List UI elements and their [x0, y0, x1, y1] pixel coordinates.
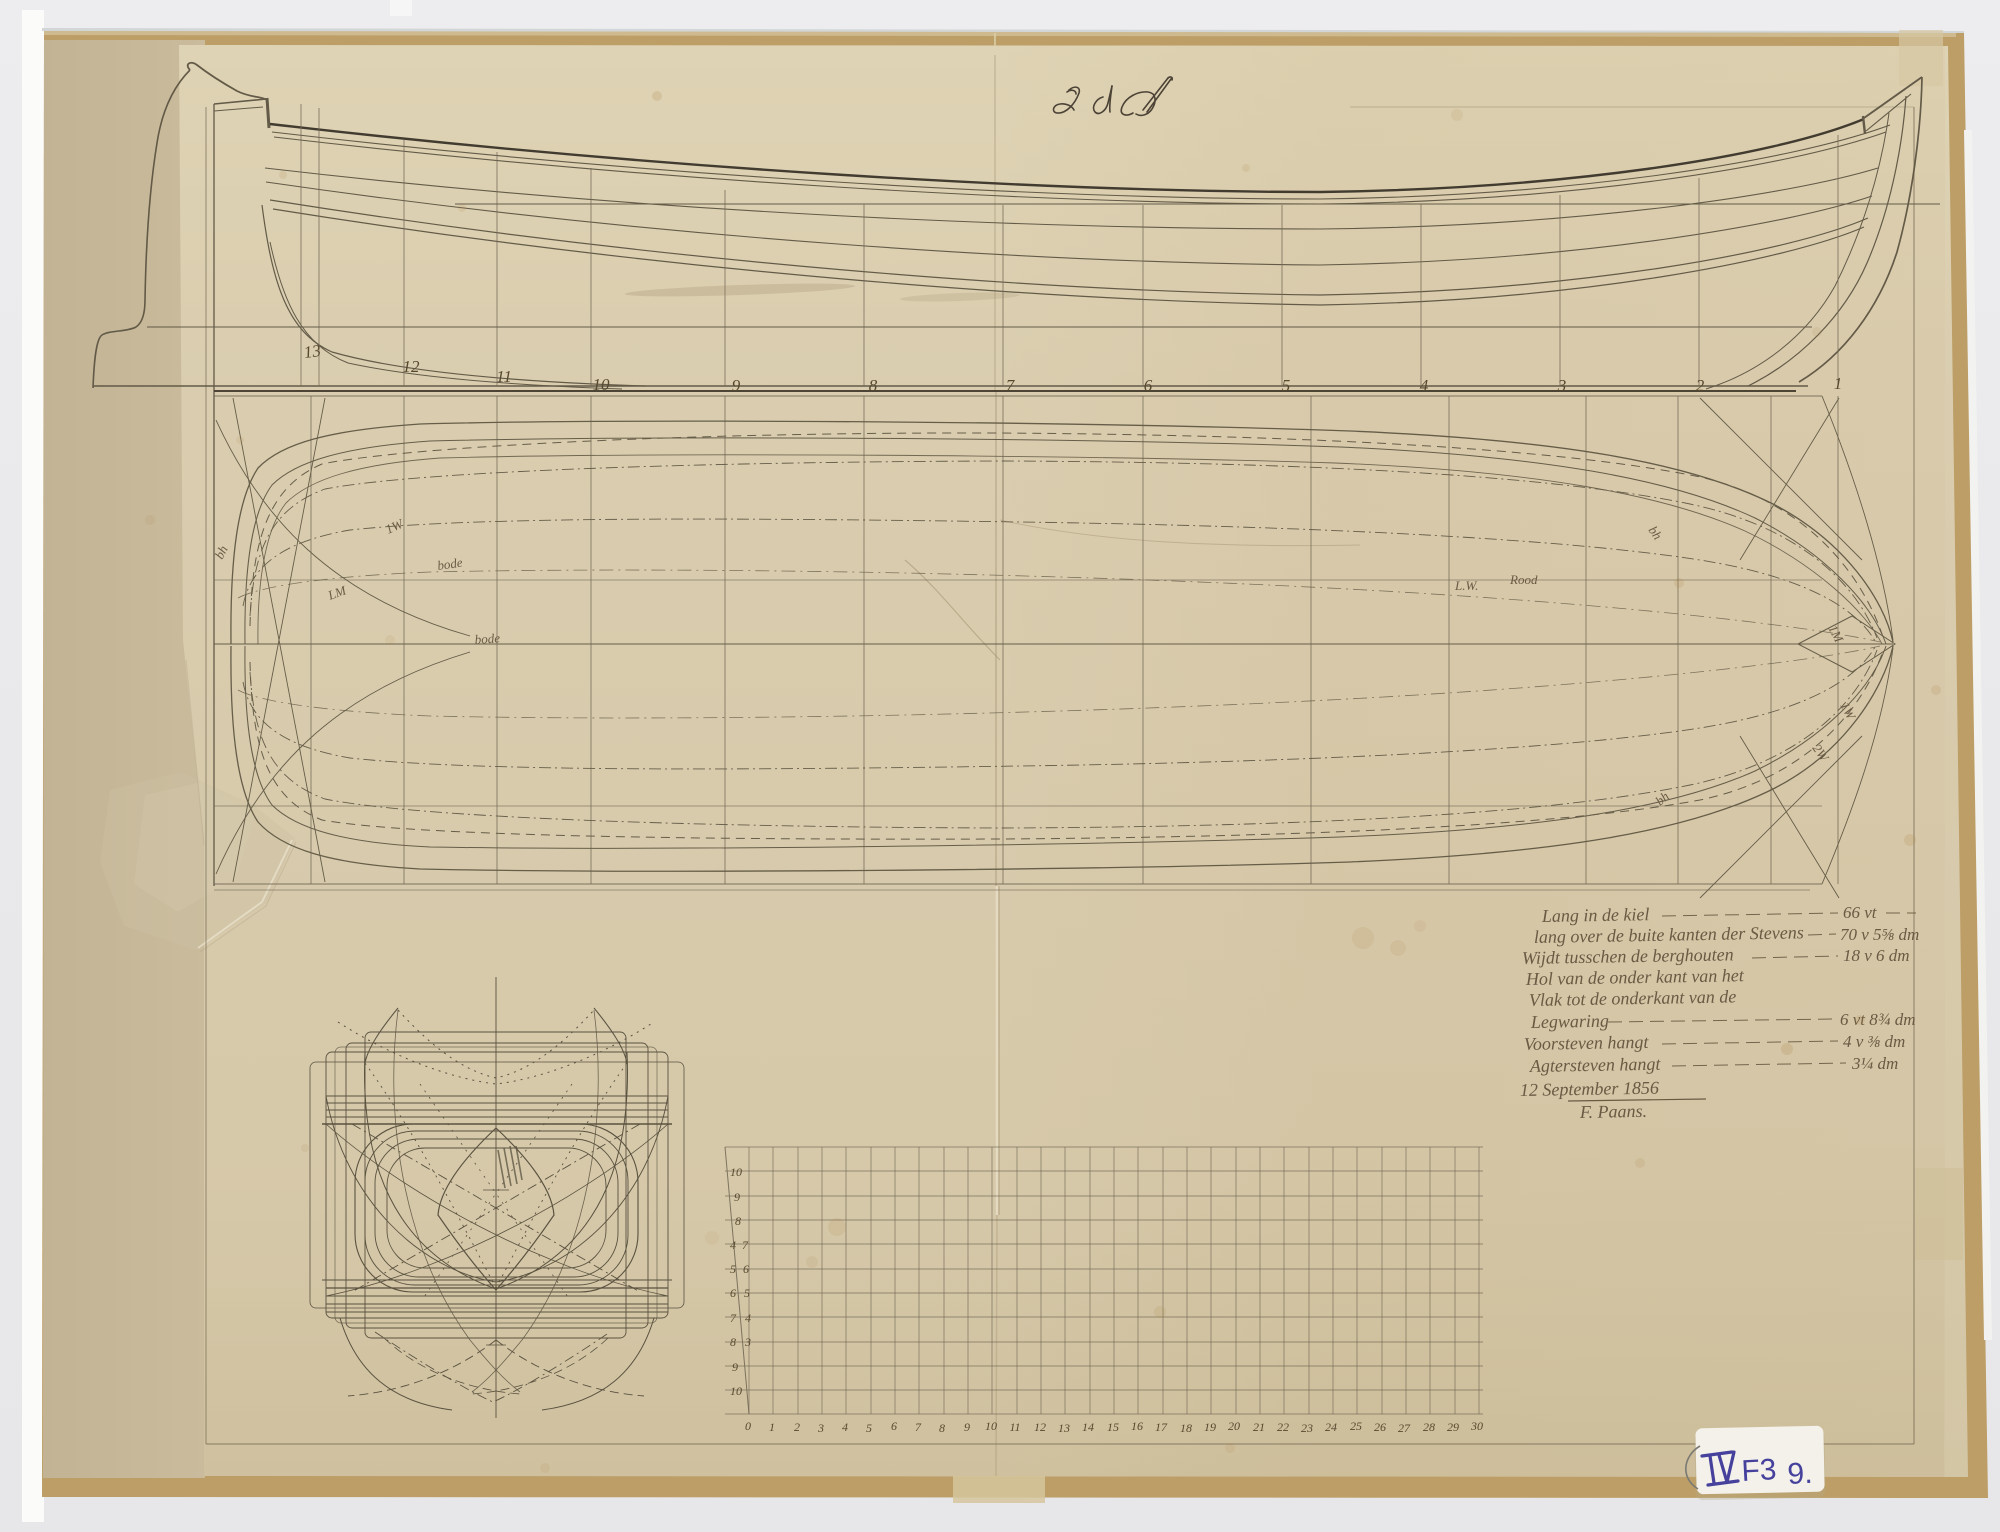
svg-text:27: 27 [1398, 1421, 1411, 1435]
svg-text:6: 6 [730, 1286, 736, 1300]
svg-text:10: 10 [730, 1165, 742, 1179]
svg-text:3: 3 [817, 1421, 824, 1435]
svg-text:8: 8 [939, 1421, 945, 1435]
svg-text:19: 19 [1204, 1420, 1216, 1434]
svg-text:11: 11 [1009, 1420, 1020, 1434]
svg-text:8: 8 [730, 1335, 736, 1349]
svg-text:12: 12 [403, 357, 421, 376]
svg-text:9.: 9. [1787, 1457, 1814, 1491]
svg-text:30: 30 [1470, 1419, 1483, 1433]
svg-text:26: 26 [1374, 1420, 1386, 1434]
svg-text:Hol van de onder kant van het: Hol van de onder kant van het [1525, 965, 1745, 989]
svg-text:70 v 5⅝ dm: 70 v 5⅝ dm [1840, 925, 1919, 944]
svg-text:9: 9 [732, 376, 741, 395]
svg-text:4: 4 [1420, 376, 1429, 395]
svg-text:Voorsteven hangt: Voorsteven hangt [1524, 1032, 1650, 1054]
svg-text:24: 24 [1325, 1420, 1337, 1434]
svg-text:12 September 1856: 12 September 1856 [1520, 1078, 1659, 1100]
svg-text:Wijdt tusschen de berghouten: Wijdt tusschen de berghouten [1522, 944, 1734, 968]
svg-text:4: 4 [730, 1238, 736, 1252]
svg-text:0: 0 [745, 1419, 751, 1433]
svg-text:Vlak tot de onderkant van de: Vlak tot de onderkant van de [1529, 986, 1737, 1010]
svg-text:15: 15 [1107, 1420, 1119, 1434]
svg-text:9: 9 [734, 1190, 740, 1204]
svg-text:5: 5 [730, 1262, 736, 1276]
svg-text:8: 8 [735, 1214, 741, 1228]
svg-text:9: 9 [964, 1420, 970, 1434]
svg-text:18: 18 [1180, 1421, 1192, 1435]
svg-text:F. Paans.: F. Paans. [1579, 1101, 1648, 1122]
svg-text:22: 22 [1277, 1420, 1289, 1434]
svg-text:14: 14 [1082, 1420, 1094, 1434]
svg-text:11: 11 [496, 367, 512, 386]
svg-text:3: 3 [744, 1335, 751, 1349]
svg-text:4: 4 [842, 1420, 848, 1434]
svg-text:16: 16 [1131, 1419, 1143, 1433]
svg-text:28: 28 [1423, 1420, 1435, 1434]
svg-text:6: 6 [743, 1262, 749, 1276]
svg-text:5: 5 [744, 1286, 750, 1300]
svg-text:5: 5 [866, 1421, 872, 1435]
svg-text:17: 17 [1155, 1420, 1168, 1434]
svg-text:4 v ⅜ dm: 4 v ⅜ dm [1843, 1032, 1905, 1051]
svg-text:10: 10 [593, 375, 611, 394]
svg-text:3: 3 [1557, 376, 1567, 395]
svg-text:Rood: Rood [1509, 572, 1538, 587]
svg-text:bode: bode [474, 630, 500, 647]
svg-text:23: 23 [1301, 1421, 1313, 1435]
svg-text:13: 13 [302, 341, 321, 362]
svg-text:7: 7 [915, 1420, 922, 1434]
svg-text:8: 8 [869, 376, 878, 395]
svg-text:1: 1 [1834, 374, 1843, 393]
svg-text:L.W.: L.W. [1454, 578, 1478, 593]
svg-text:6 vt 8¾ dm: 6 vt 8¾ dm [1840, 1010, 1916, 1029]
svg-text:9: 9 [732, 1360, 738, 1374]
svg-text:1: 1 [769, 1420, 775, 1434]
svg-text:2: 2 [794, 1420, 800, 1434]
svg-text:29: 29 [1447, 1420, 1459, 1434]
svg-text:5: 5 [1282, 376, 1291, 395]
svg-text:10: 10 [730, 1384, 742, 1398]
svg-text:7: 7 [742, 1238, 749, 1252]
svg-text:10: 10 [985, 1419, 997, 1433]
svg-text:Lang in de kiel: Lang in de kiel [1541, 904, 1650, 926]
svg-text:7: 7 [730, 1311, 737, 1325]
svg-text:6: 6 [1144, 376, 1153, 395]
svg-text:66 vt: 66 vt [1843, 903, 1878, 922]
svg-text:18 v 6 dm: 18 v 6 dm [1843, 946, 1910, 965]
svg-text:3¼ dm: 3¼ dm [1851, 1054, 1898, 1073]
svg-text:4: 4 [745, 1311, 751, 1325]
svg-text:12: 12 [1034, 1420, 1046, 1434]
svg-text:13: 13 [1058, 1421, 1070, 1435]
svg-text:6: 6 [891, 1419, 897, 1433]
svg-text:21: 21 [1253, 1420, 1265, 1434]
svg-text:25: 25 [1350, 1419, 1362, 1433]
svg-text:Agtersteven hangt: Agtersteven hangt [1529, 1054, 1662, 1076]
svg-text:2: 2 [1696, 376, 1705, 395]
svg-text:Legwaring: Legwaring [1530, 1011, 1609, 1032]
svg-text:F3: F3 [1741, 1453, 1778, 1488]
svg-text:20: 20 [1228, 1419, 1240, 1433]
